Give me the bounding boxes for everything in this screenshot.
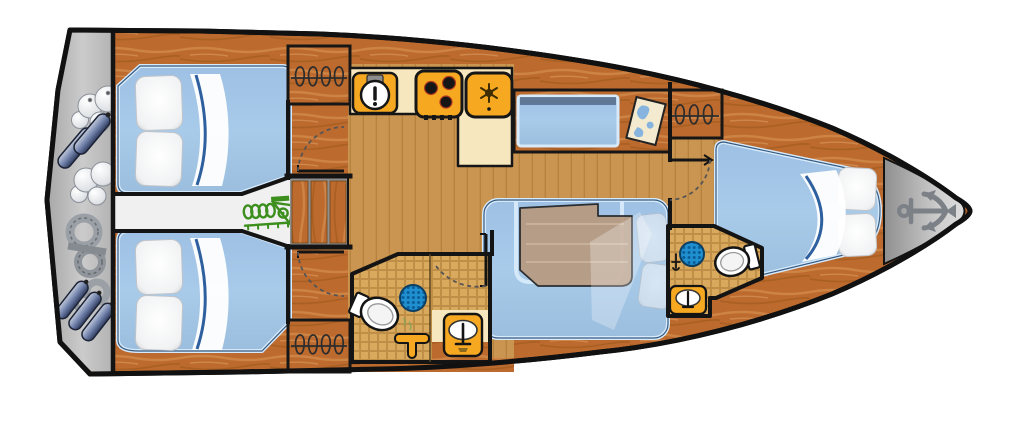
wardrobe-bottom — [288, 320, 350, 372]
boat-floor-plan — [0, 0, 1024, 422]
aft-cabin-upper — [118, 66, 290, 193]
floor-plan-svg — [0, 0, 1024, 422]
shower-drain-icon — [400, 285, 426, 311]
wardrobe-forward — [668, 90, 722, 138]
aft-cabin-lower — [118, 231, 290, 351]
wardrobe-top — [288, 46, 350, 104]
fridge — [466, 73, 512, 117]
sink-icon — [353, 73, 397, 113]
washbasin-icon — [670, 286, 706, 314]
salon — [484, 200, 675, 338]
washbasin-icon — [444, 314, 482, 356]
nav-station — [514, 90, 670, 152]
stove-icon — [416, 71, 462, 120]
aft-head — [347, 254, 490, 362]
shower-drain-icon — [680, 242, 704, 266]
companionway-steps — [290, 178, 348, 246]
